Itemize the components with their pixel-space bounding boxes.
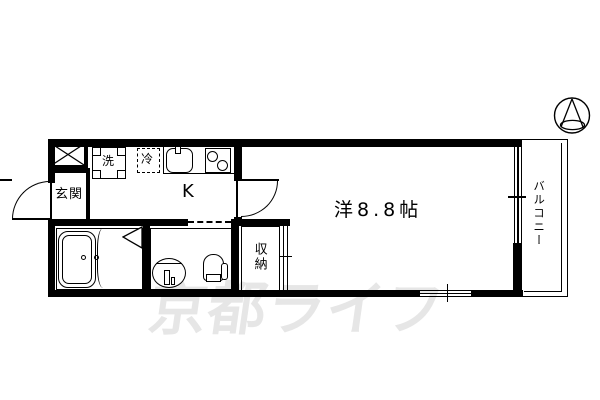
room-door-arc	[241, 181, 278, 217]
storage-door-tick	[279, 256, 292, 257]
washbasin-tap	[171, 277, 175, 285]
wall-bath-toilet	[143, 226, 150, 290]
washer-label: 洗	[102, 155, 114, 168]
entrance-door-leaf	[12, 218, 50, 220]
bathtub-inner	[62, 235, 92, 284]
room-door-jamb-line	[236, 181, 238, 217]
floor-plan-canvas: 京都ライフ 洗 冷	[0, 0, 600, 400]
mid-wall-dashed-line	[188, 221, 231, 223]
storage-label: 収納	[252, 242, 266, 272]
wall-bottom-left	[48, 290, 420, 297]
washbasin-tap	[164, 270, 170, 285]
stove-burner	[217, 160, 228, 171]
south-window-line	[420, 290, 471, 291]
balcony-window-line	[514, 147, 516, 243]
balcony-label: バルコニー	[533, 180, 545, 248]
washer-pan-corner	[92, 170, 101, 179]
counter-front-line	[163, 173, 234, 174]
shaft-box	[48, 140, 88, 169]
balcony-inner-line-right	[561, 143, 562, 292]
counter-left-line	[163, 147, 164, 174]
toilet-tank	[221, 263, 228, 280]
room-door-leaf	[241, 179, 279, 181]
washer-pan-corner	[117, 170, 126, 179]
kitchen-label: K	[182, 183, 194, 202]
bathtub-knob	[81, 255, 86, 260]
entrance-opening-line	[50, 182, 52, 219]
stove-burner	[207, 151, 218, 162]
balcony-inner-line-bottom	[524, 291, 562, 292]
south-window-tick	[447, 284, 448, 302]
fridge-label: 冷	[141, 153, 153, 166]
wall-left-lower	[48, 219, 55, 297]
entrance-door-arc	[12, 181, 50, 219]
wall-entrance-kitchen	[86, 169, 90, 219]
wall-kitchen-room-lower	[234, 217, 242, 226]
washer-pan-corner	[92, 147, 101, 156]
wall-toilet-storage	[231, 226, 239, 290]
south-window-line	[420, 293, 471, 294]
balcony-window-tick	[508, 196, 526, 198]
wall-mid-horizontal	[48, 219, 290, 226]
washbasin-rim-line	[156, 263, 182, 264]
south-window-line	[420, 296, 471, 297]
balcony-window-line	[517, 147, 519, 243]
balcony-window-line	[521, 147, 523, 243]
wall-kitchen-room-upper	[234, 139, 242, 181]
wall-right-lower	[513, 243, 521, 297]
compass-north-icon	[552, 96, 592, 136]
entrance-door-tick	[0, 179, 12, 181]
washer-pan-corner	[117, 147, 126, 156]
toilet-seat	[206, 274, 221, 282]
storage-door-line	[287, 226, 288, 291]
bathroom-door-curve	[97, 228, 103, 288]
entrance-label: 玄関	[55, 188, 83, 202]
wall-top	[48, 139, 521, 147]
main-room-label: 洋8.8帖	[334, 201, 422, 221]
storage-door-line	[283, 226, 284, 291]
bathroom-door-triangle-icon	[122, 226, 143, 249]
shaft-x-icon	[52, 144, 84, 165]
